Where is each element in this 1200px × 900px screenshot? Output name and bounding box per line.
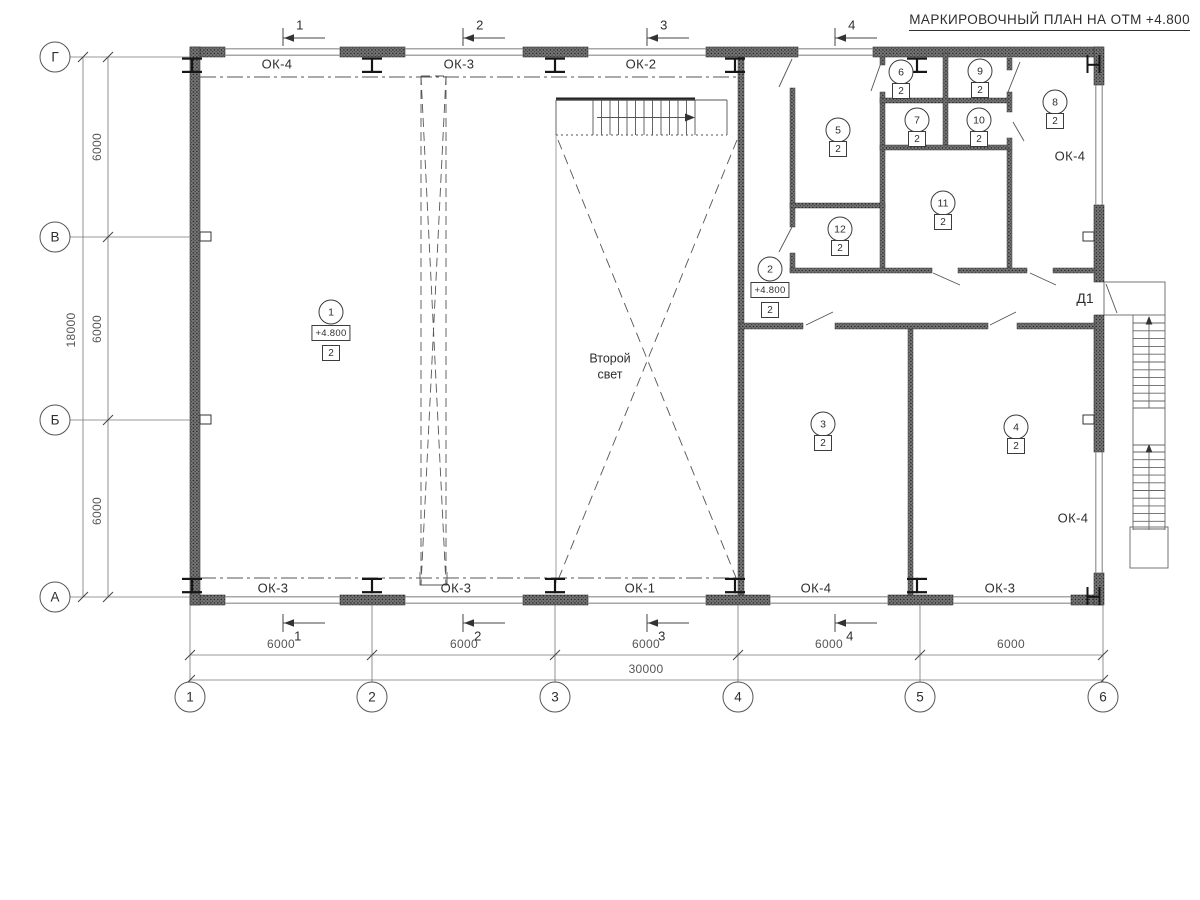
section-mark-number-top: 4 — [848, 18, 856, 33]
window-label: ОК-2 — [626, 57, 657, 72]
dimension-label: 6000 — [90, 497, 104, 525]
section-mark-number-top: 3 — [660, 18, 668, 33]
section-mark-number-bottom: 4 — [846, 629, 854, 644]
dimension-total-label: 18000 — [64, 313, 78, 348]
section-mark-number-top: 2 — [476, 18, 484, 33]
window-label: ОК-3 — [985, 581, 1016, 596]
room-number-bubble: 4 — [1004, 415, 1029, 440]
room-number-bubble: 12 — [828, 217, 853, 242]
room-number-bubble: 10 — [967, 108, 992, 133]
axis-bubble-col: 6 — [1088, 682, 1119, 713]
room-number-bubble: 2 — [758, 257, 783, 282]
room-number-bubble: 3 — [811, 412, 836, 437]
dimension-label: 6000 — [815, 637, 843, 651]
second-light-opening-x — [558, 140, 737, 580]
floor-opening-strip — [420, 76, 447, 585]
floor-plan-canvas: МАРКИРОВОЧНЫЙ ПЛАН НА ОТМ +4.800 Второй … — [0, 0, 1200, 900]
dimension-label: 6000 — [90, 133, 104, 161]
window-label: ОК-3 — [258, 581, 289, 596]
window-label: ОК-4 — [1058, 511, 1089, 526]
window-label: ОК-3 — [444, 57, 475, 72]
door-d1-label: Д1 — [1076, 290, 1093, 306]
room-type-square: 2 — [934, 214, 952, 230]
section-mark-number-bottom: 1 — [294, 629, 302, 644]
room-type-square: 2 — [1046, 113, 1064, 129]
dimension-total-label: 30000 — [629, 662, 664, 676]
room-type-square: 2 — [761, 302, 779, 318]
second-light-line2: свет — [589, 367, 630, 383]
axis-bubble-col: 3 — [540, 682, 571, 713]
room-type-square: 2 — [908, 131, 926, 147]
room-type-square: 2 — [892, 83, 910, 99]
second-light-label: Второй свет — [589, 351, 630, 382]
dash-dot-lines — [200, 77, 737, 578]
axis-bubble-row: В — [40, 222, 71, 253]
window-label: ОК-4 — [262, 57, 293, 72]
room-type-square: 2 — [831, 240, 849, 256]
grid-axis-lines — [69, 57, 1103, 683]
room-number-bubble: 9 — [968, 59, 993, 84]
dimension-label: 6000 — [267, 637, 295, 651]
axis-bubble-col: 1 — [175, 682, 206, 713]
room-number-bubble: 11 — [931, 191, 956, 216]
room-type-square: 2 — [1007, 438, 1025, 454]
interior-stair — [556, 98, 727, 136]
room-number-bubble: 1 — [319, 300, 344, 325]
axis-bubble-row: А — [40, 582, 71, 613]
section-mark-number-bottom: 2 — [474, 629, 482, 644]
axis-bubble-row: Б — [40, 405, 71, 436]
room-type-square: 2 — [814, 435, 832, 451]
room-type-square: 2 — [829, 141, 847, 157]
axis-bubble-col: 5 — [905, 682, 936, 713]
elevation-box: +4.800 — [750, 282, 789, 298]
window-label: ОК-4 — [801, 581, 832, 596]
room-type-square: 2 — [970, 131, 988, 147]
dimension-label: 6000 — [997, 637, 1025, 651]
window-label: ОК-4 — [1055, 149, 1086, 164]
window-label: ОК-3 — [441, 581, 472, 596]
room-number-bubble: 7 — [905, 108, 930, 133]
section-mark-number-bottom: 3 — [658, 629, 666, 644]
room-number-bubble: 8 — [1043, 90, 1068, 115]
axis-bubble-col: 2 — [357, 682, 388, 713]
axis-bubble-row: Г — [40, 42, 71, 73]
dimension-label: 6000 — [632, 637, 660, 651]
room-number-bubble: 5 — [826, 118, 851, 143]
section-mark-number-top: 1 — [296, 18, 304, 33]
axis-bubble-col: 4 — [723, 682, 754, 713]
room-type-square: 2 — [322, 345, 340, 361]
dimension-label: 6000 — [90, 315, 104, 343]
drawing-title: МАРКИРОВОЧНЫЙ ПЛАН НА ОТМ +4.800 — [909, 12, 1190, 31]
room-number-bubble: 6 — [889, 60, 914, 85]
external-stair — [1104, 282, 1168, 568]
room-type-square: 2 — [971, 82, 989, 98]
elevation-box: +4.800 — [311, 325, 350, 341]
second-light-line1: Второй — [589, 351, 630, 367]
window-label: ОК-1 — [625, 581, 656, 596]
section-mark-arrows — [283, 28, 877, 632]
